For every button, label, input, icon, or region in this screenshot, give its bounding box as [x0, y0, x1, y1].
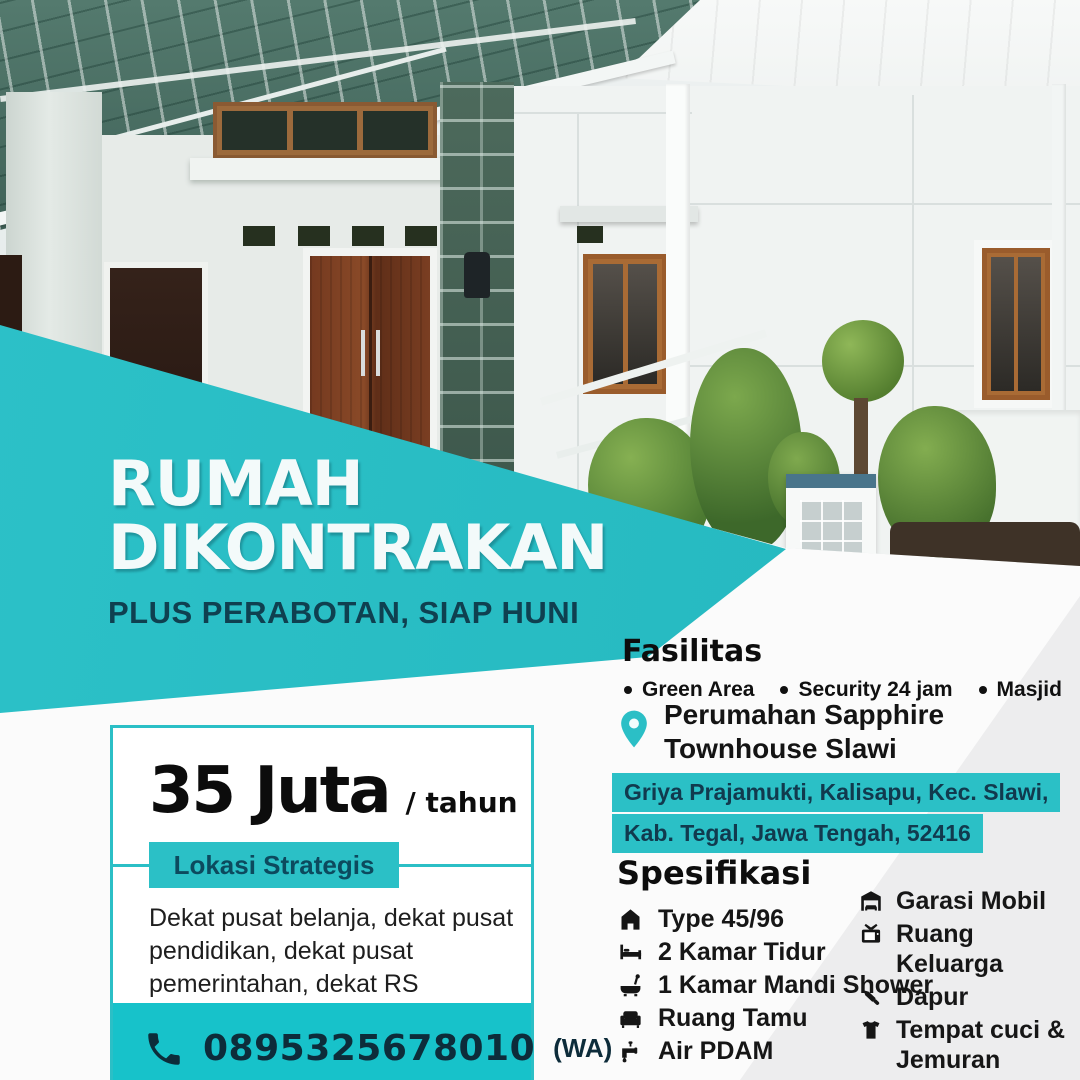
map-pin-icon — [612, 699, 656, 759]
location-name-line1: Perumahan Sapphire — [664, 698, 944, 732]
spec-item: Dapur — [858, 982, 1074, 1012]
sofa-icon — [617, 1005, 644, 1032]
far-window — [982, 248, 1050, 400]
tv-icon — [858, 919, 884, 947]
knife-icon — [858, 982, 884, 1010]
address: Griya Prajamukti, Kalisapu, Kec. Slawi, … — [612, 773, 1060, 855]
address-line1: Griya Prajamukti, Kalisapu, Kec. Slawi, — [612, 773, 1060, 812]
spec-item: Tempat cuci & Jemuran — [858, 1015, 1074, 1075]
bullet-dot — [979, 686, 987, 694]
bath-icon — [617, 972, 644, 999]
spec-list-right: Garasi Mobil Ruang Keluarga Dapur Tempat… — [858, 886, 1074, 1080]
title-block: RUMAH DIKONTRAKAN PLUS PERABOTAN, SIAP H… — [108, 452, 607, 631]
door-handle — [361, 330, 365, 376]
faucet-icon — [617, 1038, 644, 1065]
wall-lamp — [464, 252, 490, 298]
phone-number: 0895325678010 — [203, 1028, 535, 1069]
address-line2: Kab. Tegal, Jawa Tengah, 52416 — [612, 814, 983, 853]
fasilitas-heading: Fasilitas — [622, 634, 762, 669]
price-row: 35 Juta / tahun — [149, 754, 518, 828]
home-icon — [617, 906, 644, 933]
topiary-tree — [822, 320, 904, 402]
location-name: Perumahan Sapphire Townhouse Slawi — [664, 698, 944, 766]
spec-item: Garasi Mobil — [858, 886, 1074, 916]
location-description: Dekat pusat belanja, dekat pusat pendidi… — [149, 902, 531, 1001]
shirt-icon — [858, 1015, 884, 1043]
transom-window — [213, 102, 437, 159]
bullet-dot — [780, 686, 788, 694]
poster-title-line1: RUMAH — [108, 452, 607, 516]
fasilitas-item: Masjid — [979, 678, 1062, 702]
garage-icon — [858, 886, 884, 914]
bullet-dot — [624, 686, 632, 694]
spec-item: Ruang Keluarga — [858, 919, 1074, 979]
price-card: 35 Juta / tahun Lokasi Strategis Dekat p… — [110, 725, 534, 1080]
bed-icon — [617, 939, 644, 966]
phone-icon — [143, 1028, 185, 1070]
location-badge: Lokasi Strategis — [149, 842, 399, 888]
spesifikasi-heading: Spesifikasi — [617, 854, 811, 892]
location-name-line2: Townhouse Slawi — [664, 732, 944, 766]
price-amount: 35 Juta — [149, 754, 390, 828]
phone-bar: 0895325678010 (WA) — [113, 1003, 531, 1080]
rental-flyer-poster: RUMAH DIKONTRAKAN PLUS PERABOTAN, SIAP H… — [0, 0, 1080, 1080]
poster-subtitle: PLUS PERABOTAN, SIAP HUNI — [108, 595, 607, 631]
phone-suffix: (WA) — [553, 1033, 612, 1064]
price-unit: / tahun — [406, 786, 518, 819]
poster-title-line2: DIKONTRAKAN — [108, 516, 607, 580]
door-handle — [376, 330, 380, 376]
